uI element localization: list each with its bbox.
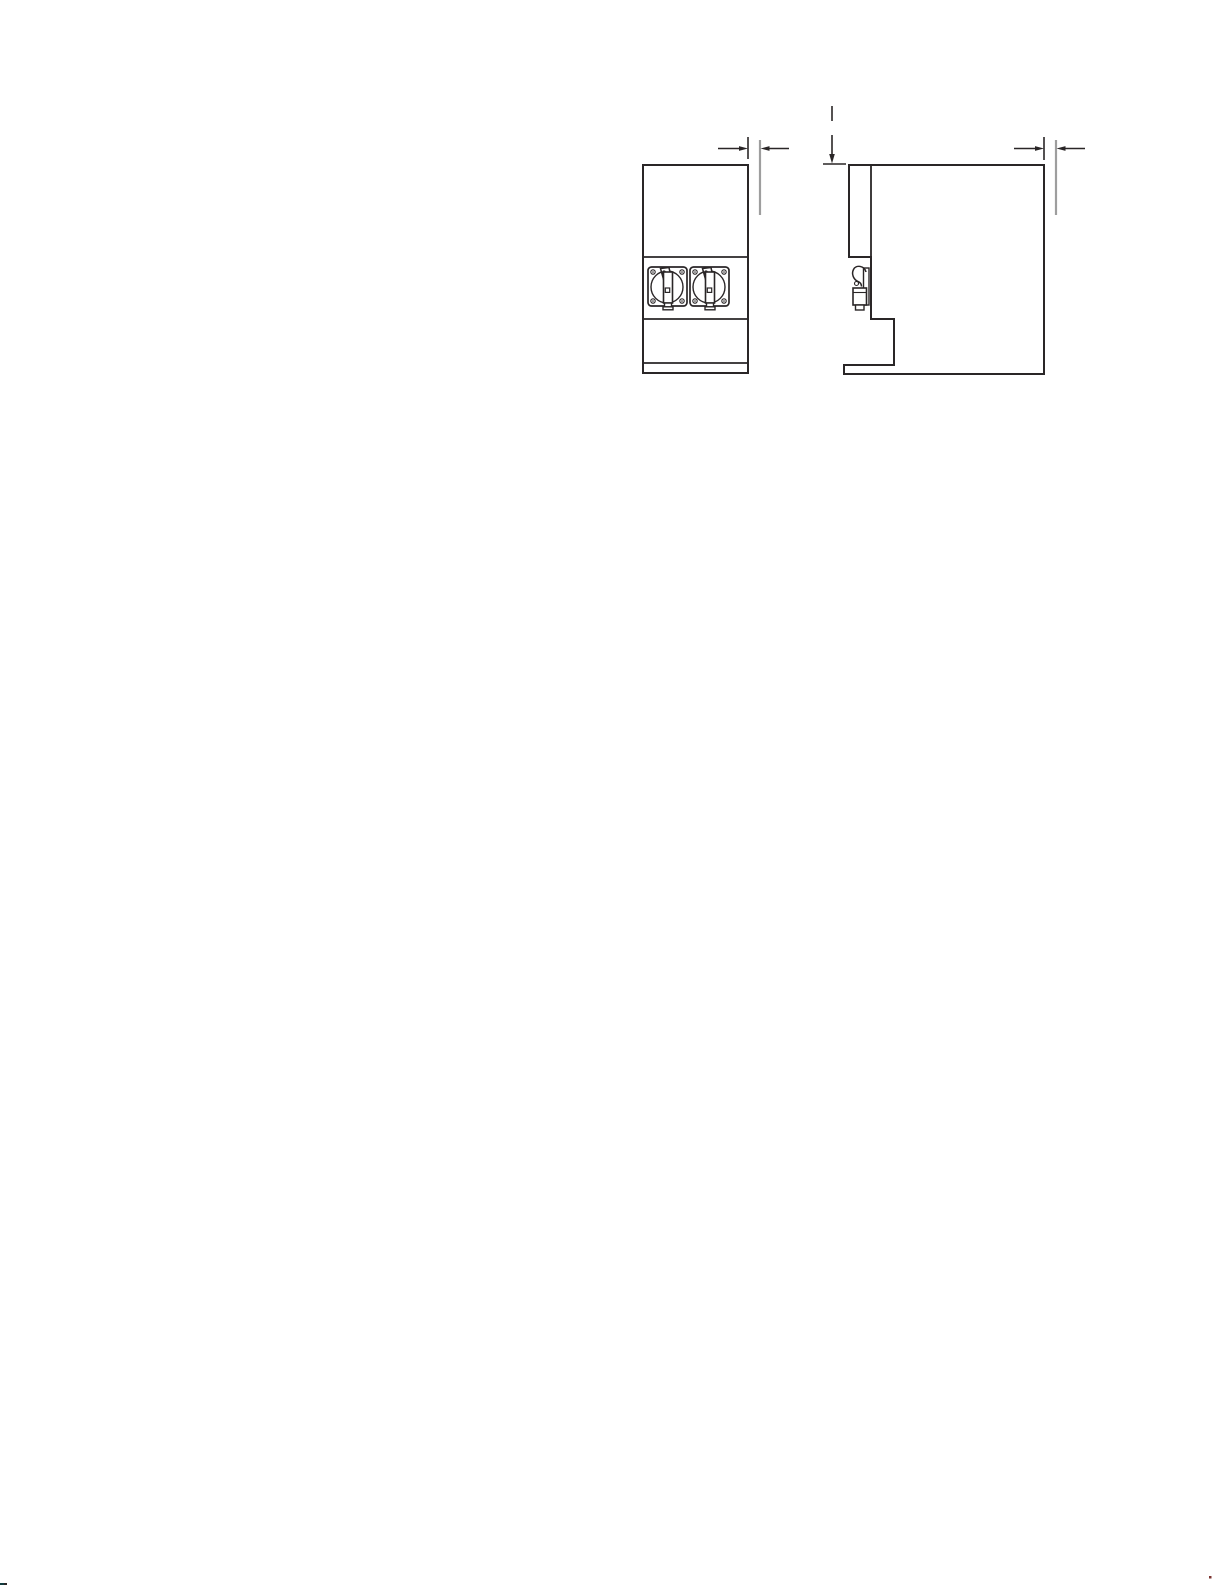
arrow-left-icon bbox=[761, 146, 770, 151]
side-view bbox=[844, 165, 1044, 374]
dispense-valve-front-right bbox=[690, 267, 729, 310]
screw-dot bbox=[652, 271, 654, 273]
arrow-right-icon bbox=[1035, 146, 1044, 151]
scan-artifact bbox=[1209, 1576, 1212, 1579]
screw-dot bbox=[652, 300, 654, 302]
screw-dot bbox=[694, 300, 696, 302]
spout-tip bbox=[663, 307, 673, 310]
dimension-side-height bbox=[823, 106, 846, 164]
dispense-valve-front-left bbox=[648, 267, 687, 310]
screw-dot bbox=[681, 300, 683, 302]
scan-artifacts bbox=[0, 1576, 1212, 1585]
spout-profile bbox=[856, 305, 865, 310]
screw-dot bbox=[723, 271, 725, 273]
arrow-right-icon bbox=[739, 146, 748, 151]
dimension-front-clearance bbox=[718, 137, 789, 215]
arrow-down-icon bbox=[829, 154, 835, 164]
technical-drawing bbox=[0, 0, 1225, 1585]
screw-dot bbox=[694, 271, 696, 273]
dispense-valve-side bbox=[853, 266, 869, 310]
side-outline bbox=[844, 165, 1044, 374]
spout-tip bbox=[705, 307, 715, 310]
dimension-side-clearance bbox=[1014, 137, 1085, 215]
manual-page bbox=[0, 0, 1225, 1585]
screw-dot bbox=[681, 271, 683, 273]
arrow-left-icon bbox=[1057, 146, 1066, 151]
screw-dot bbox=[723, 300, 725, 302]
handle-knob bbox=[855, 282, 859, 286]
valve-body-profile bbox=[853, 288, 867, 305]
